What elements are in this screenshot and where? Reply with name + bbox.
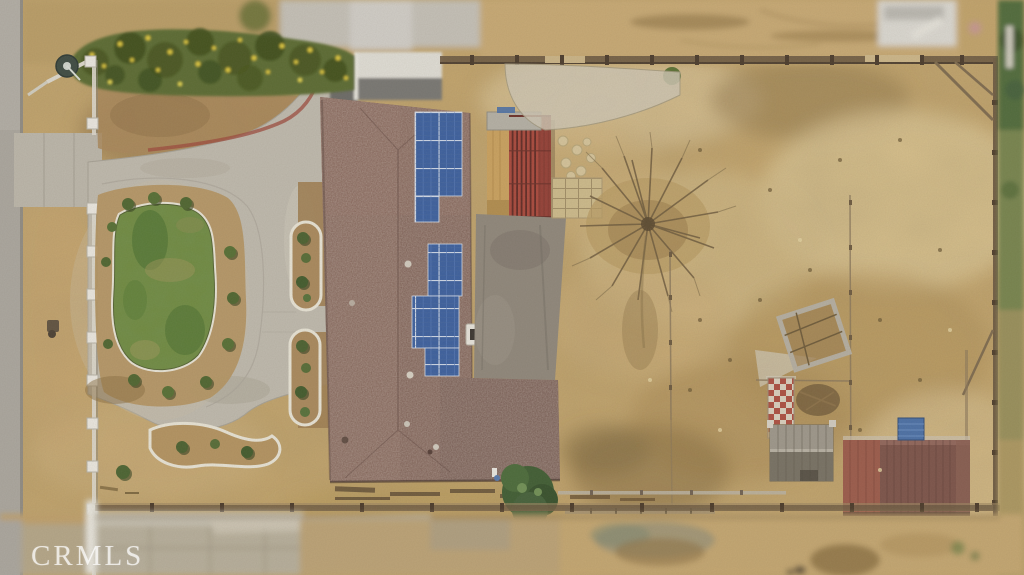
aerial-photo-canvas bbox=[0, 0, 1024, 575]
photo-grain-light bbox=[0, 0, 1024, 575]
aerial-photo: CRMLS bbox=[0, 0, 1024, 575]
mls-watermark: CRMLS bbox=[31, 540, 144, 573]
